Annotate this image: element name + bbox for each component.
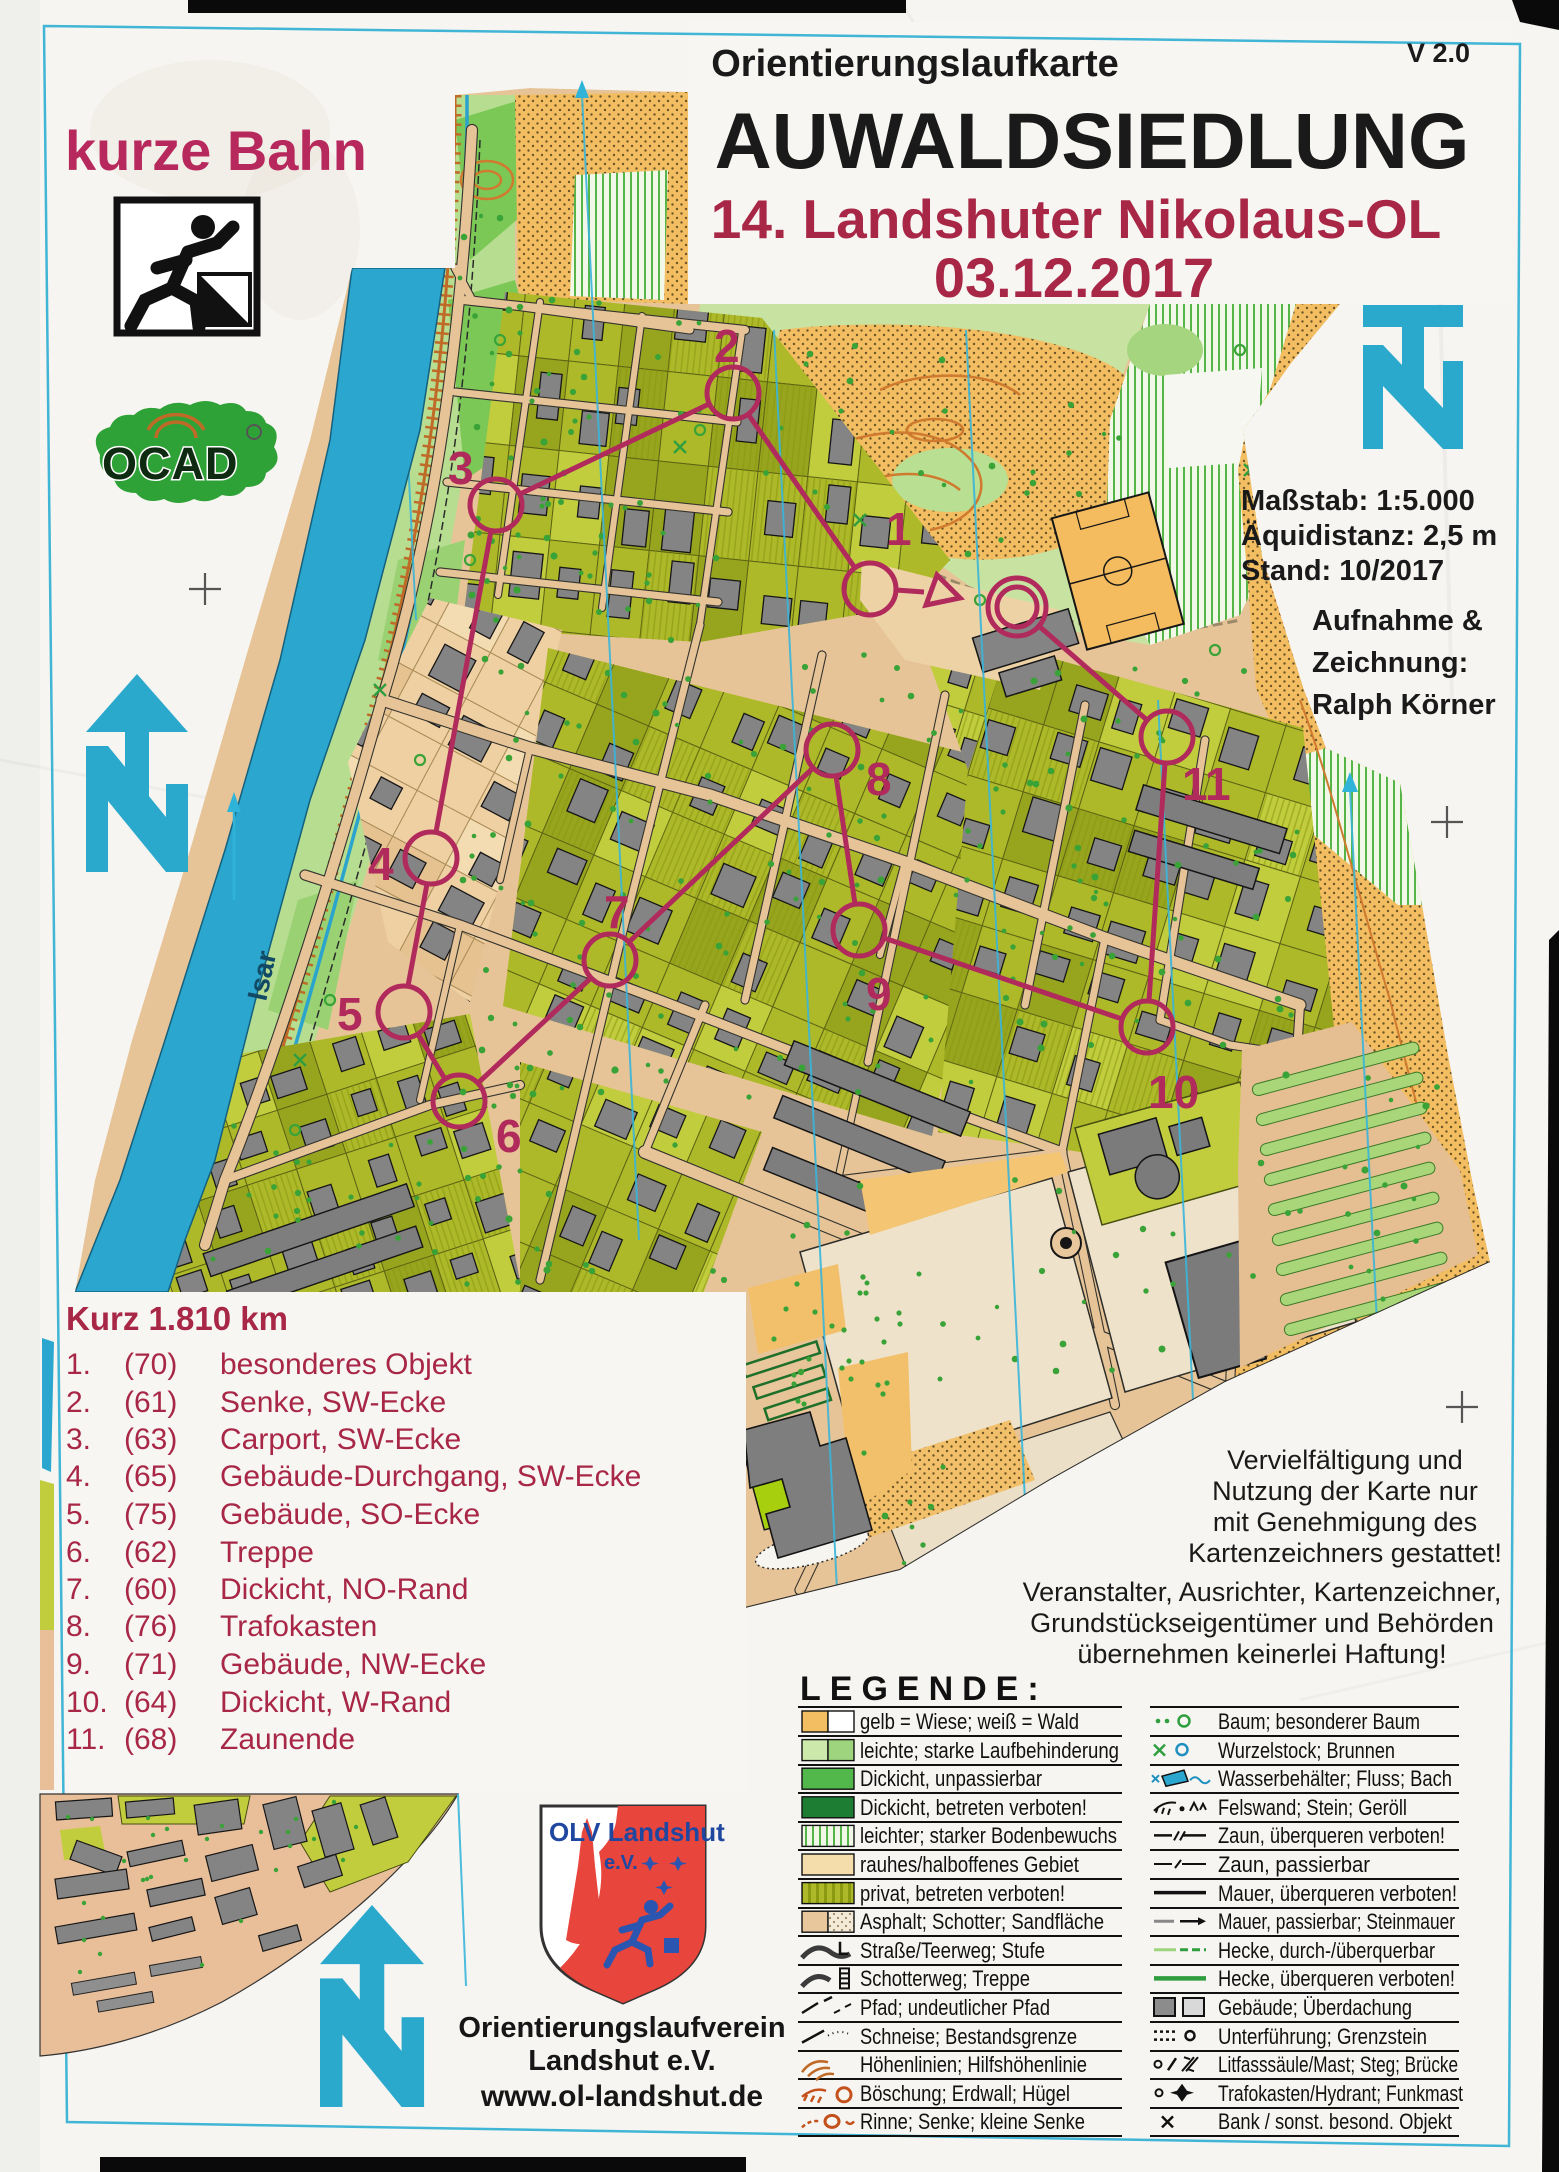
svg-text:LEGENDE:: LEGENDE: (800, 1670, 1048, 1708)
svg-text:Landshut e.V.: Landshut e.V. (528, 2045, 715, 2077)
svg-text:03.12.2017: 03.12.2017 (934, 246, 1214, 309)
svg-text:Schotterweg; Treppe: Schotterweg; Treppe (860, 1966, 1030, 1991)
svg-text:Mauer, passierbar; Steinmauer: Mauer, passierbar; Steinmauer (1218, 1909, 1455, 1934)
svg-text:(63): (63) (124, 1423, 177, 1456)
svg-text:5.: 5. (66, 1498, 91, 1531)
svg-text:6.: 6. (66, 1536, 91, 1569)
svg-text:Höhenlinien; Hilfshöhenlinie: Höhenlinien; Hilfshöhenlinie (860, 2052, 1087, 2077)
svg-text:Gebäude, NW-Ecke: Gebäude, NW-Ecke (220, 1648, 486, 1681)
svg-text:(61): (61) (124, 1386, 177, 1419)
svg-text:Gebäude-Durchgang, SW-Ecke: Gebäude-Durchgang, SW-Ecke (220, 1460, 641, 1493)
svg-text:Aufnahme &: Aufnahme & (1312, 605, 1483, 637)
svg-text:Orientierungslaufkarte: Orientierungslaufkarte (711, 43, 1119, 85)
svg-text:Schneise; Bestandsgrenze: Schneise; Bestandsgrenze (860, 2024, 1077, 2049)
svg-text:5: 5 (337, 988, 363, 1040)
svg-text:11: 11 (1182, 758, 1231, 810)
svg-text:8: 8 (866, 753, 892, 805)
svg-text:Pfad; undeutlicher Pfad: Pfad; undeutlicher Pfad (860, 1995, 1050, 2020)
svg-text:Wurzelstock; Brunnen: Wurzelstock; Brunnen (1218, 1738, 1395, 1763)
svg-text:besonderes Objekt: besonderes Objekt (220, 1348, 472, 1381)
svg-text:privat, betreten verboten!: privat, betreten verboten! (860, 1881, 1065, 1906)
svg-text:Kartenzeichners gestattet!: Kartenzeichners gestattet! (1188, 1538, 1502, 1568)
svg-text:Ralph Körner: Ralph Körner (1312, 689, 1496, 721)
svg-text:Bank / sonst. besond. Objekt: Bank / sonst. besond. Objekt (1218, 2109, 1452, 2134)
svg-text:übernehmen keinerlei Haftung!: übernehmen keinerlei Haftung! (1077, 1639, 1446, 1669)
svg-text:Straße/Teerweg; Stufe: Straße/Teerweg; Stufe (860, 1938, 1045, 1963)
svg-text:3.: 3. (66, 1423, 91, 1456)
svg-text:kurze Bahn: kurze Bahn (65, 119, 367, 182)
svg-text:Hecke, durch-/überquerbar: Hecke, durch-/überquerbar (1218, 1938, 1435, 1963)
svg-text:Senke, SW-Ecke: Senke, SW-Ecke (220, 1386, 446, 1419)
svg-text:Maßstab: 1:5.000: Maßstab: 1:5.000 (1241, 485, 1475, 517)
svg-text:Zaun, passierbar: Zaun, passierbar (1218, 1852, 1370, 1877)
svg-text:7.: 7. (66, 1573, 91, 1606)
svg-text:Hecke, überqueren verboten!: Hecke, überqueren verboten! (1218, 1966, 1455, 1991)
svg-text:9.: 9. (66, 1648, 91, 1681)
svg-text:Veranstalter, Ausrichter, Kart: Veranstalter, Ausrichter, Kartenzeichner… (1023, 1577, 1502, 1607)
svg-text:Zaunende: Zaunende (220, 1723, 355, 1756)
svg-text:9: 9 (866, 968, 892, 1020)
svg-text:Nutzung der Karte nur: Nutzung der Karte nur (1212, 1476, 1478, 1506)
svg-text:Gebäude; Überdachung: Gebäude; Überdachung (1218, 1995, 1412, 2020)
svg-text:mit Genehmigung des: mit Genehmigung des (1213, 1507, 1477, 1537)
svg-text:Felswand; Stein; Geröll: Felswand; Stein; Geröll (1218, 1795, 1407, 1820)
svg-text:Baum; besonderer Baum: Baum; besonderer Baum (1218, 1709, 1420, 1734)
svg-text:Zeichnung:: Zeichnung: (1312, 647, 1468, 679)
svg-text:V 2.0: V 2.0 (1407, 38, 1470, 68)
svg-text:Trafokasten: Trafokasten (220, 1610, 377, 1643)
svg-text:leichte; starke Laufbehinderun: leichte; starke Laufbehinderung (860, 1738, 1119, 1763)
svg-text:2.: 2. (66, 1386, 91, 1419)
svg-text:leichter; starker Bodenbewuchs: leichter; starker Bodenbewuchs (860, 1823, 1117, 1848)
svg-text:(71): (71) (124, 1648, 177, 1681)
svg-text:4: 4 (368, 838, 394, 890)
svg-text:Stand: 10/2017: Stand: 10/2017 (1241, 555, 1444, 587)
svg-text:Äquidistanz: 2,5 m: Äquidistanz: 2,5 m (1241, 519, 1497, 552)
svg-text:Asphalt; Schotter; Sandfläche: Asphalt; Schotter; Sandfläche (860, 1909, 1104, 1934)
svg-text:Treppe: Treppe (220, 1536, 314, 1569)
svg-text:Wasserbehälter; Fluss; Bach: Wasserbehälter; Fluss; Bach (1218, 1766, 1452, 1791)
svg-text:(70): (70) (124, 1348, 177, 1381)
svg-text:(64): (64) (124, 1686, 177, 1719)
svg-text:Carport, SW-Ecke: Carport, SW-Ecke (220, 1423, 461, 1456)
svg-text:(65): (65) (124, 1460, 177, 1493)
svg-text:Dickicht, betreten verboten!: Dickicht, betreten verboten! (860, 1795, 1087, 1820)
svg-text:OCAD: OCAD (102, 438, 239, 489)
svg-text:(62): (62) (124, 1536, 177, 1569)
svg-text:(60): (60) (124, 1573, 177, 1606)
svg-text:Rinne; Senke; kleine Senke: Rinne; Senke; kleine Senke (860, 2109, 1085, 2134)
svg-text:www.ol-landshut.de: www.ol-landshut.de (480, 2080, 763, 2113)
svg-text:Unterführung; Grenzstein: Unterführung; Grenzstein (1218, 2024, 1427, 2049)
svg-text:OLV Landshut: OLV Landshut (549, 1817, 725, 1847)
svg-text:(75): (75) (124, 1498, 177, 1531)
svg-text:Grundstückseigentümer und Behö: Grundstückseigentümer und Behörden (1030, 1608, 1494, 1638)
svg-text:Vervielfältigung und: Vervielfältigung und (1227, 1445, 1463, 1475)
svg-text:Dickicht, NO-Rand: Dickicht, NO-Rand (220, 1573, 468, 1606)
svg-text:Dickicht, unpassierbar: Dickicht, unpassierbar (860, 1766, 1042, 1791)
svg-text:Böschung; Erdwall; Hügel: Böschung; Erdwall; Hügel (860, 2081, 1070, 2106)
svg-text:1.: 1. (66, 1348, 91, 1381)
svg-text:8.: 8. (66, 1610, 91, 1643)
svg-text:Gebäude, SO-Ecke: Gebäude, SO-Ecke (220, 1498, 480, 1531)
svg-text:4.: 4. (66, 1460, 91, 1493)
svg-text:e.V.: e.V. (604, 1852, 638, 1874)
svg-text:Trafokasten/Hydrant; Funkmast: Trafokasten/Hydrant; Funkmast (1218, 2081, 1463, 2106)
svg-text:2: 2 (714, 320, 740, 372)
svg-text:6: 6 (496, 1110, 522, 1162)
svg-text:10.: 10. (66, 1686, 108, 1719)
svg-text:(68): (68) (124, 1723, 177, 1756)
svg-text:Kurz 1.810 km: Kurz 1.810 km (66, 1300, 288, 1337)
svg-text:(76): (76) (124, 1610, 177, 1643)
svg-text:rauhes/halboffenes Gebiet: rauhes/halboffenes Gebiet (860, 1852, 1079, 1877)
svg-text:Dickicht, W-Rand: Dickicht, W-Rand (220, 1686, 451, 1719)
svg-text:3: 3 (448, 442, 474, 494)
svg-text:AUWALDSIEDLUNG: AUWALDSIEDLUNG (715, 96, 1470, 185)
svg-text:gelb = Wiese; weiß = Wald: gelb = Wiese; weiß = Wald (860, 1709, 1079, 1734)
svg-text:14. Landshuter Nikolaus-OL: 14. Landshuter Nikolaus-OL (711, 188, 1441, 250)
svg-text:Zaun, überqueren verboten!: Zaun, überqueren verboten! (1218, 1823, 1445, 1848)
svg-text:11.: 11. (66, 1723, 105, 1756)
svg-text:10: 10 (1148, 1066, 1199, 1118)
svg-text:Orientierungslaufverein: Orientierungslaufverein (458, 2012, 785, 2044)
svg-text:1: 1 (886, 503, 912, 555)
svg-text:Litfasssäule/Mast; Steg; Brück: Litfasssäule/Mast; Steg; Brücke (1218, 2052, 1458, 2077)
svg-text:Mauer, überqueren verboten!: Mauer, überqueren verboten! (1218, 1881, 1457, 1906)
svg-text:7: 7 (604, 886, 630, 938)
